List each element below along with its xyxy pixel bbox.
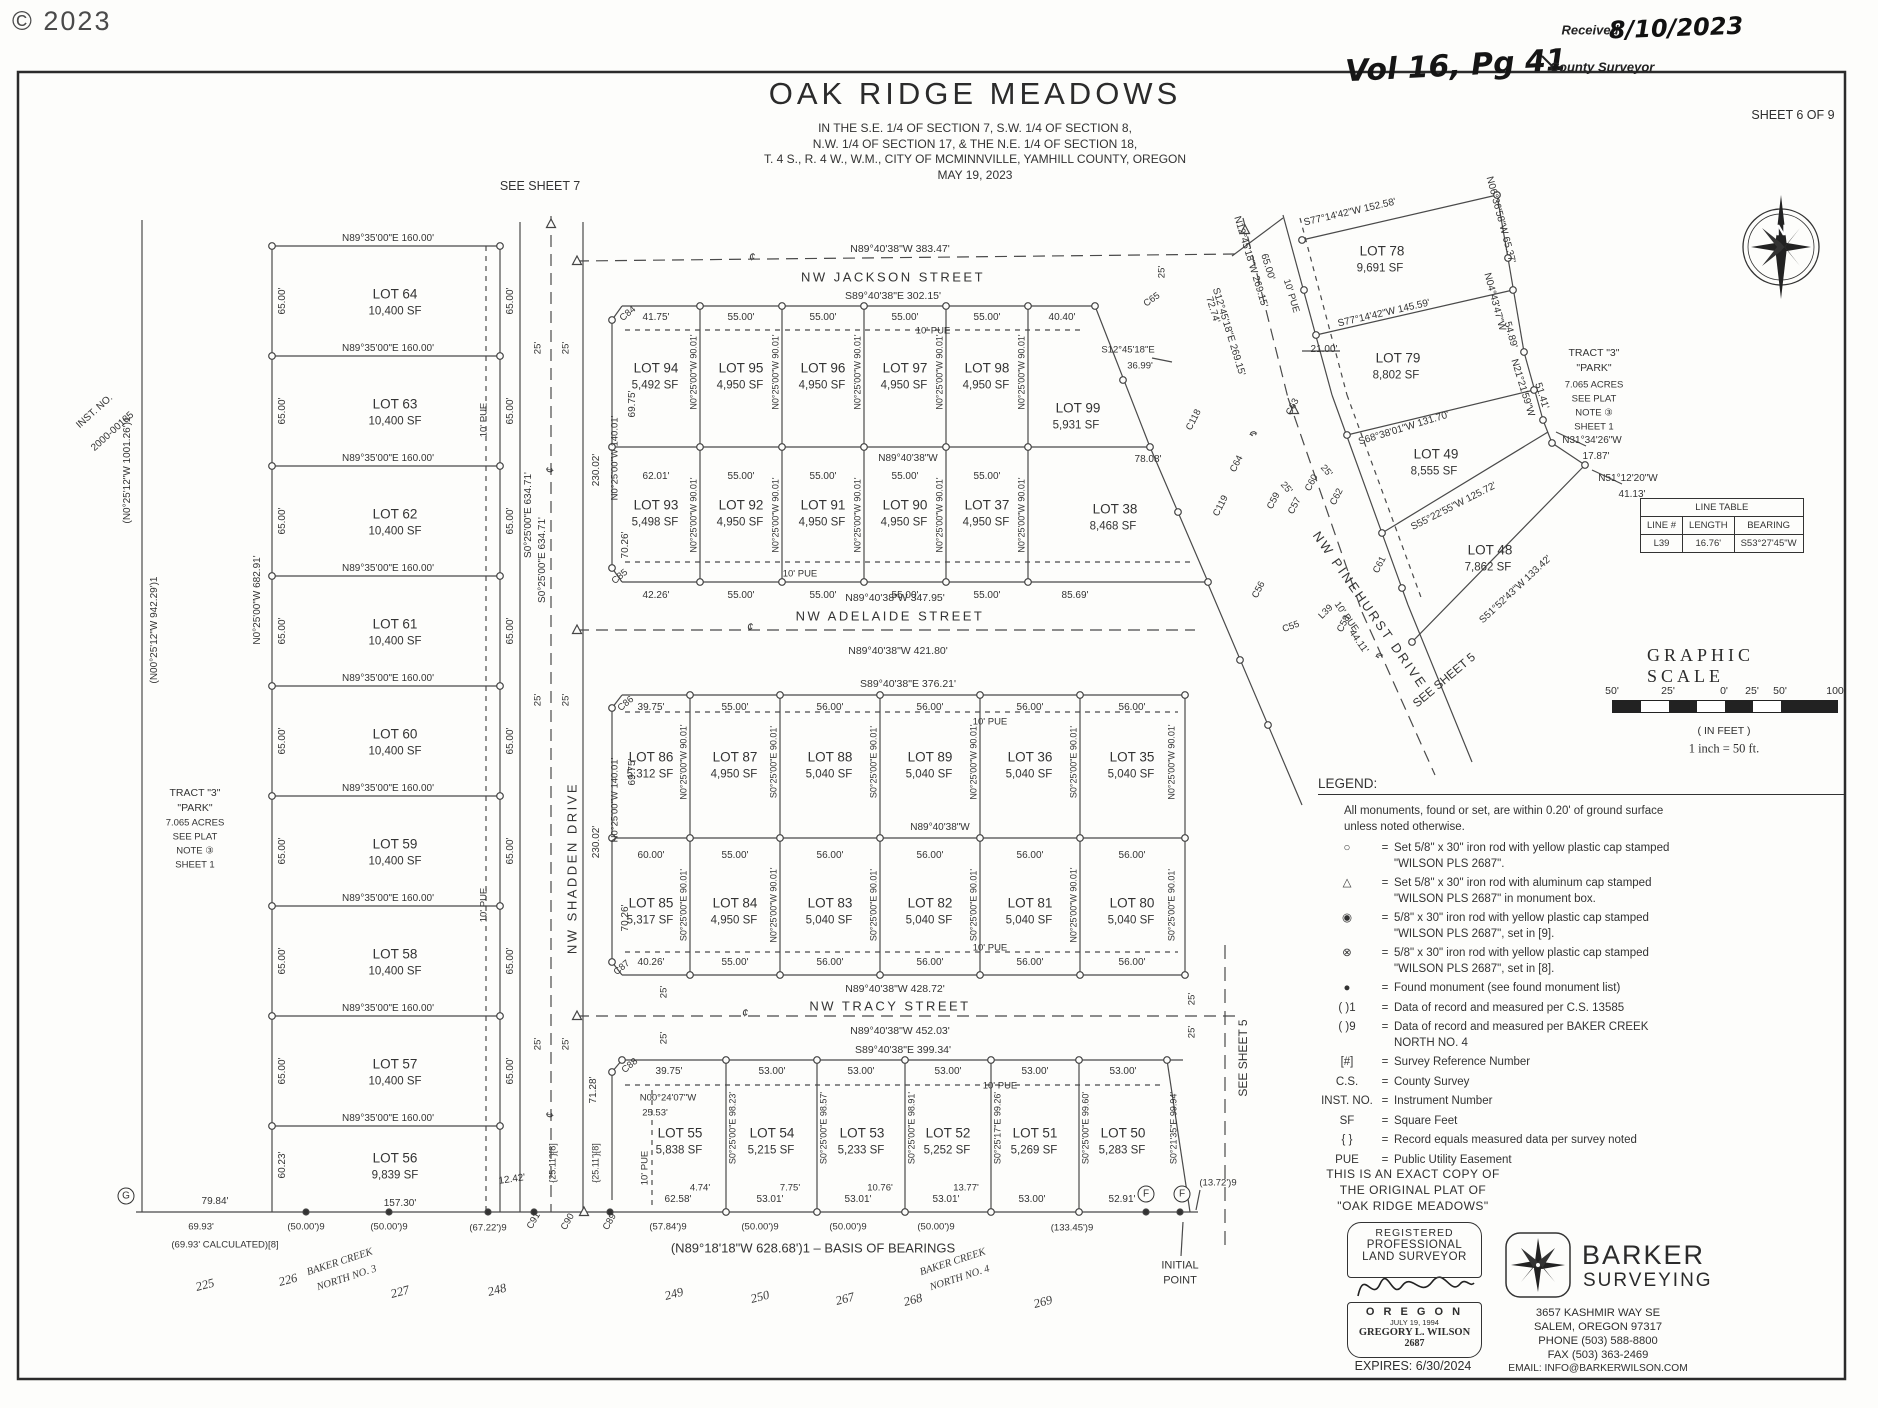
map-label: 39.75': [638, 703, 665, 713]
map-label: LOT 83: [808, 896, 853, 910]
map-label: LOT 93: [634, 498, 679, 512]
map-label: 56.00': [1017, 703, 1044, 713]
map-label: 53.00': [1019, 1195, 1046, 1205]
map-label: LOT 79: [1376, 351, 1421, 365]
line-table-header: LINE #: [1641, 517, 1683, 535]
legend-equals: =: [1376, 1055, 1394, 1071]
map-label: 10' PUE: [973, 943, 1008, 953]
map-label: 56.00': [1017, 958, 1044, 968]
map-label: 56.00': [917, 958, 944, 968]
map-label: (50.00')9: [917, 1222, 954, 1232]
map-label: LOT 57: [373, 1057, 418, 1071]
map-label: 5,269 SF: [1011, 1145, 1058, 1157]
line-table-header: LENGTH: [1683, 517, 1735, 535]
map-label: S89°40'38"E 399.34': [855, 1045, 951, 1056]
map-label: LOT 35: [1110, 750, 1155, 764]
legend-symbol: { }: [1318, 1133, 1376, 1149]
map-label: INITIAL: [1161, 1261, 1198, 1272]
firm-city: SALEM, OREGON 97317: [1468, 1320, 1728, 1334]
stamp-land-surveyor: LAND SURVEYOR: [1348, 1251, 1481, 1263]
legend-symbol: [#]: [1318, 1055, 1376, 1071]
map-label: 10,400 SF: [368, 1076, 421, 1088]
map-label: ¢: [546, 467, 557, 473]
map-label: 55.00': [892, 472, 919, 482]
map-label: LOT 54: [750, 1126, 795, 1140]
map-label: LOT 53: [840, 1126, 885, 1140]
legend-item-text: Set 5/8" x 30" iron rod with yellow plas…: [1394, 841, 1844, 872]
map-label: 70.26': [621, 532, 631, 559]
map-label: 55.00': [810, 472, 837, 482]
line-table-cell: L39: [1641, 535, 1683, 553]
scale-tick-label: 0': [1720, 685, 1728, 697]
legend-items: ○=Set 5/8" x 30" iron rod with yellow pl…: [1318, 841, 1844, 1168]
map-label: 7,862 SF: [1465, 562, 1512, 574]
map-label: 53.00': [759, 1067, 786, 1077]
map-label: 56.00': [917, 703, 944, 713]
map-label: LOT 61: [373, 617, 418, 631]
map-label: SEE SHEET 5: [1237, 1019, 1249, 1096]
scale-tick-label: 25': [1661, 685, 1675, 697]
map-label: 8,802 SF: [1373, 370, 1420, 382]
map-label: 230.02': [592, 454, 602, 487]
map-label: ¢: [546, 1112, 557, 1118]
legend-symbol: ( )9: [1318, 1020, 1376, 1051]
map-label: SHEET 1: [1574, 422, 1613, 432]
map-label: (N00°25'12"W 942.29')1: [150, 577, 160, 684]
map-label: 55.00': [728, 591, 755, 601]
plat-sheet: N © 2023 Vol 16, Pg 41 Received 8/10/202…: [0, 0, 1878, 1408]
legend-equals: =: [1376, 876, 1394, 907]
map-label: 65.00': [506, 398, 516, 425]
legend-equals: =: [1376, 1133, 1394, 1149]
map-label: N89°35'00"E 160.00': [342, 784, 434, 794]
graphic-scale-title: GRAPHIC SCALE: [1647, 645, 1801, 687]
map-label: LOT 82: [908, 896, 953, 910]
stamp-state: O R E G O N: [1348, 1306, 1481, 1318]
map-label: 56.00': [1119, 851, 1146, 861]
title-date: MAY 19, 2023: [764, 168, 1186, 184]
map-label: 55.00': [892, 313, 919, 323]
legend-equals: =: [1376, 1094, 1394, 1110]
map-label: N0°25'00"W 90.01': [690, 334, 699, 409]
map-label: TRACT "3": [1568, 348, 1619, 359]
map-label: SEE PLAT: [173, 832, 218, 842]
map-label: 55.00': [722, 851, 749, 861]
legend-symbol: ○: [1318, 841, 1376, 872]
map-label: 7.75': [780, 1183, 800, 1193]
map-label: LOT 94: [634, 361, 679, 375]
map-label: N0°25'00"W 90.01': [854, 477, 863, 552]
map-label: LOT 50: [1101, 1126, 1146, 1140]
stamp-professional: PROFESSIONAL: [1348, 1239, 1481, 1251]
map-label: LOT 98: [965, 361, 1010, 375]
map-label: S0°25'00"E 634.71': [538, 517, 548, 603]
map-label: N0°25'00"W 140.01': [610, 758, 620, 843]
title-sub2: N.W. 1/4 OF SECTION 17, & THE N.E. 1/4 O…: [764, 137, 1186, 153]
map-label: N0°25'00"W 90.01': [772, 477, 781, 552]
map-label: 5,492 SF: [632, 380, 679, 392]
legend-symbol: ( )1: [1318, 1001, 1376, 1017]
map-label: 25': [561, 342, 571, 354]
map-label: 56.00': [817, 703, 844, 713]
line-table: LINE TABLE LINE #LENGTHBEARING L3916.76'…: [1640, 498, 1804, 553]
map-label: 4,950 SF: [711, 915, 758, 927]
line-table-title: LINE TABLE: [1641, 499, 1804, 517]
map-label: ¢: [742, 1009, 748, 1020]
map-label: S0°21'35"E 99.94': [1170, 1092, 1179, 1164]
map-label: S0°25'00"E 634.71': [524, 472, 534, 558]
map-label: S0°25'00"E 90.01': [870, 726, 879, 798]
map-label: 10,400 SF: [368, 966, 421, 978]
map-label: {25.11'}[8]: [549, 1143, 558, 1183]
map-label: 69.93': [188, 1222, 214, 1232]
legend-item: ●=Found monument (see found monument lis…: [1318, 981, 1844, 997]
map-label: 53.01': [933, 1195, 960, 1205]
map-label: 5,233 SF: [838, 1145, 885, 1157]
map-label: 53.00': [848, 1067, 875, 1077]
map-label: N89°35'00"E 160.00': [342, 1004, 434, 1014]
map-label: S0°25'17"E 99.26': [994, 1092, 1003, 1164]
legend-symbol: INST. NO.: [1318, 1094, 1376, 1110]
map-label: 10' PUE: [783, 569, 818, 579]
legend-symbol: C.S.: [1318, 1075, 1376, 1091]
map-label: 53.01': [757, 1195, 784, 1205]
map-label: ¢: [749, 253, 755, 264]
map-label: 4,950 SF: [963, 380, 1010, 392]
map-label: 65.00': [506, 838, 516, 865]
map-label: 5,317 SF: [627, 915, 674, 927]
map-label: 53.00': [935, 1067, 962, 1077]
graphic-scale-ratio: 1 inch = 50 ft.: [1689, 742, 1760, 757]
legend-equals: =: [1376, 841, 1394, 872]
map-label: S89°40'38"E 376.21': [860, 679, 956, 690]
map-label: 65.00': [506, 618, 516, 645]
map-label: 9,839 SF: [372, 1170, 419, 1182]
map-label: 65.00': [506, 728, 516, 755]
legend-item: △=Set 5/8" x 30" iron rod with aluminum …: [1318, 876, 1844, 907]
map-label: LOT 52: [926, 1126, 971, 1140]
map-label: 10,400 SF: [368, 526, 421, 538]
map-label: (50.00')9: [287, 1222, 324, 1232]
map-label: N0°25'00"W 90.01': [1168, 724, 1177, 799]
legend-intro-line: All monuments, found or set, are within …: [1344, 803, 1844, 819]
map-label: N0°25'00"W 90.01': [970, 724, 979, 799]
map-label: 5,040 SF: [1108, 915, 1155, 927]
map-label: 13.77': [953, 1183, 979, 1193]
stamp-expiration: EXPIRES: 6/30/2024: [1355, 1359, 1472, 1373]
map-label: TRACT "3": [169, 788, 220, 799]
map-label: N0°25'00"W 90.01': [690, 477, 699, 552]
map-label: 25': [561, 694, 571, 706]
map-label: LOT 36: [1008, 750, 1053, 764]
map-label: LOT 63: [373, 397, 418, 411]
map-label: 25': [659, 986, 669, 998]
map-label: 42.26': [643, 591, 670, 601]
map-label: 65.00': [278, 618, 288, 645]
legend-item: ( )1=Data of record and measured per C.S…: [1318, 1001, 1844, 1017]
map-label: 40.40': [1049, 313, 1076, 323]
map-label: 10,400 SF: [368, 306, 421, 318]
legend-item-text: County Survey: [1394, 1075, 1844, 1091]
map-label: 60.00': [638, 851, 665, 861]
legend-symbol: ⊗: [1318, 946, 1376, 977]
map-label: LOT 48: [1468, 543, 1513, 557]
map-label: LOT 51: [1013, 1126, 1058, 1140]
legend-equals: =: [1376, 1114, 1394, 1130]
map-label: 56.00': [917, 851, 944, 861]
map-label: N89°35'00"E 160.00': [342, 454, 434, 464]
map-label: 55.00': [974, 591, 1001, 601]
map-label: N89°40'38"W: [878, 454, 938, 464]
map-label: N89°40'38"W 421.80': [848, 646, 948, 657]
map-label: 10' PUE: [983, 1081, 1018, 1091]
map-label: N89°35'00"E 160.00': [342, 344, 434, 354]
title-sub1: IN THE S.E. 1/4 OF SECTION 7, S.W. 1/4 O…: [764, 121, 1186, 137]
legend-item: { }=Record equals measured data per surv…: [1318, 1133, 1844, 1149]
map-label: (67.22')9: [469, 1223, 506, 1233]
map-label: F: [1174, 1186, 1191, 1203]
map-label: 25': [1187, 1026, 1197, 1038]
map-label: 69.75': [628, 391, 638, 418]
scale-tick-label: 50': [1773, 685, 1787, 697]
legend-item: ○=Set 5/8" x 30" iron rod with yellow pl…: [1318, 841, 1844, 872]
map-label: S0°25'00"E 90.01': [1070, 726, 1079, 798]
map-label: N0°25'00"W 90.01': [936, 477, 945, 552]
map-label: 5,252 SF: [924, 1145, 971, 1157]
map-label: 10' PUE: [479, 403, 489, 438]
map-label: 78.08': [1135, 455, 1162, 465]
legend-intro: All monuments, found or set, are within …: [1344, 803, 1844, 835]
map-label: G: [118, 1188, 135, 1205]
map-label: 52.91': [1109, 1195, 1136, 1205]
map-label: N89°40'38"W 383.47': [850, 244, 950, 255]
graphic-scale-units: ( IN FEET ): [1698, 725, 1751, 737]
map-label: 10,400 SF: [368, 746, 421, 758]
map-label: 4,950 SF: [799, 517, 846, 529]
legend-item-text: Data of record and measured per C.S. 135…: [1394, 1001, 1844, 1017]
map-label: (133.45')9: [1051, 1223, 1093, 1233]
map-label: S12°45'18"E: [1101, 345, 1154, 355]
map-label: 5,040 SF: [1108, 769, 1155, 781]
map-label: 71.28': [589, 1077, 599, 1104]
map-label: N89°35'00"E 160.00': [342, 234, 434, 244]
map-label: 5,040 SF: [806, 769, 853, 781]
map-label: 25': [1187, 993, 1197, 1005]
map-label: SEE SHEET 7: [500, 180, 580, 193]
copyright-mark: © 2023: [12, 6, 111, 37]
legend-intro-line: unless noted otherwise.: [1344, 819, 1844, 835]
graphic-scale-bar: [1612, 700, 1838, 713]
map-label: 5,040 SF: [906, 769, 953, 781]
map-label: 41.75': [643, 313, 670, 323]
map-label: LOT 95: [719, 361, 764, 375]
svg-text:N: N: [1776, 222, 1787, 239]
map-label: 65.00': [278, 508, 288, 535]
map-label: LOT 59: [373, 837, 418, 851]
map-label: 55.00': [810, 313, 837, 323]
map-label: 65.00': [278, 288, 288, 315]
map-label: 5,283 SF: [1099, 1145, 1146, 1157]
map-label: NOTE ③: [1575, 408, 1613, 418]
map-label: LOT 49: [1414, 447, 1459, 461]
plat-title: OAK RIDGE MEADOWS: [764, 76, 1186, 112]
map-label: 55.00': [974, 313, 1001, 323]
map-label: 65.00': [278, 838, 288, 865]
map-label: 7.065 ACRES: [1565, 380, 1624, 390]
legend-item-text: Survey Reference Number: [1394, 1055, 1844, 1071]
map-label: N0°25'00"W 90.01': [936, 334, 945, 409]
county-surveyor-stamp: County Surveyor: [1550, 60, 1655, 75]
legend-equals: =: [1376, 1075, 1394, 1091]
map-label: 60.23': [278, 1152, 288, 1179]
legend-equals: =: [1376, 1020, 1394, 1051]
exact-copy-line: THIS IS AN EXACT COPY OF: [1326, 1166, 1500, 1182]
map-label: LOT 85: [629, 896, 674, 910]
map-label: LOT 80: [1110, 896, 1155, 910]
stamp-registered: REGISTERED: [1348, 1227, 1481, 1239]
legend: LEGEND: All monuments, found or set, are…: [1318, 776, 1844, 1168]
map-label: (69.93' CALCULATED)[8]: [171, 1240, 278, 1250]
map-label: LOT 38: [1093, 502, 1138, 516]
firm-address: 3657 KASHMIR WAY SE SALEM, OREGON 97317 …: [1468, 1306, 1728, 1376]
map-label: 25.53': [642, 1108, 668, 1118]
map-label: 5,312 SF: [627, 769, 674, 781]
map-label: LOT 90: [883, 498, 928, 512]
map-label: LOT 58: [373, 947, 418, 961]
map-label: 62.58': [665, 1195, 692, 1205]
map-label: LOT 78: [1360, 244, 1405, 258]
map-label: 5,215 SF: [748, 1145, 795, 1157]
legend-item-text: 5/8" x 30" iron rod with yellow plastic …: [1394, 911, 1844, 942]
map-label: LOT 92: [719, 498, 764, 512]
map-label: 8,555 SF: [1411, 466, 1458, 478]
map-label: N0°25'00"W 90.01': [1018, 477, 1027, 552]
legend-symbol: ●: [1318, 981, 1376, 997]
scale-tick-label: 50': [1605, 685, 1619, 697]
firm-name: BARKER: [1582, 1240, 1705, 1271]
map-label: 5,040 SF: [1006, 915, 1053, 927]
map-label: LOT 64: [373, 287, 418, 301]
legend-item: ( )9=Data of record and measured per BAK…: [1318, 1020, 1844, 1051]
legend-equals: =: [1376, 1001, 1394, 1017]
map-label: 5,838 SF: [656, 1145, 703, 1157]
map-label: 17.87': [1583, 452, 1610, 462]
legend-item-text: Data of record and measured per BAKER CR…: [1394, 1020, 1844, 1051]
sheet-number: SHEET 6 OF 9: [1751, 108, 1834, 122]
map-label: S0°25'00"E 99.60': [1082, 1092, 1091, 1164]
map-label: LOT 56: [373, 1151, 418, 1165]
map-label: N89°35'00"E 160.00': [342, 564, 434, 574]
legend-item-text: 5/8" x 30" iron rod with yellow plastic …: [1394, 946, 1844, 977]
legend-symbol: SF: [1318, 1114, 1376, 1130]
map-label: 55.00': [722, 958, 749, 968]
map-label: N0°25'00"W 90.01': [680, 724, 689, 799]
map-label: LOT 84: [713, 896, 758, 910]
legend-title: LEGEND:: [1318, 776, 1844, 795]
map-label: 25': [659, 1032, 669, 1044]
map-label: {25.11'}[8]: [592, 1143, 601, 1183]
map-label: N0°25'00"W 90.01': [772, 334, 781, 409]
map-label: 4,950 SF: [717, 380, 764, 392]
map-label: 25': [533, 1038, 543, 1050]
firm-phone: PHONE (503) 588-8800: [1468, 1334, 1728, 1348]
map-label: 85.69': [1062, 591, 1089, 601]
map-label: N00°24'07"W: [640, 1093, 697, 1103]
map-label: N0°25'00"W 90.01': [854, 334, 863, 409]
map-label: N31°34'26"W: [1562, 436, 1622, 446]
scale-tick-label: 100': [1826, 685, 1846, 697]
map-label: 36.99': [1127, 361, 1153, 371]
legend-item: ◉=5/8" x 30" iron rod with yellow plasti…: [1318, 911, 1844, 942]
map-label: 230.02': [592, 826, 602, 859]
map-label: N0°25'00"W 90.01': [770, 867, 779, 942]
title-block: OAK RIDGE MEADOWS IN THE S.E. 1/4 OF SEC…: [764, 76, 1186, 183]
legend-item: [#]=Survey Reference Number: [1318, 1055, 1844, 1071]
exact-copy-line: "OAK RIDGE MEADOWS": [1326, 1198, 1500, 1214]
map-label: N89°40'38"W 347.95': [845, 593, 945, 604]
title-sub3: T. 4 S., R. 4 W., W.M., CITY OF MCMINNVI…: [764, 152, 1186, 168]
map-label: 9,691 SF: [1357, 263, 1404, 275]
map-label: 53.01': [845, 1195, 872, 1205]
legend-item-text: Set 5/8" x 30" iron rod with aluminum ca…: [1394, 876, 1844, 907]
map-label: S0°25'00"E 90.01': [870, 869, 879, 941]
stamp-surveyor-name: GREGORY L. WILSON: [1348, 1327, 1481, 1338]
stamp-license-number: 2687: [1348, 1338, 1481, 1349]
legend-item-text: Instrument Number: [1394, 1094, 1844, 1110]
map-label: 56.00': [1017, 851, 1044, 861]
legend-equals: =: [1376, 981, 1394, 997]
map-label: NW JACKSON STREET: [801, 271, 985, 284]
map-label: LOT 55: [658, 1126, 703, 1140]
map-label: SHEET 1: [175, 860, 214, 870]
map-label: 4.74': [690, 1183, 710, 1193]
map-label: NOTE ③: [176, 846, 214, 856]
map-label: LOT 87: [713, 750, 758, 764]
map-label: 5,931 SF: [1053, 420, 1100, 432]
legend-item: ⊗=5/8" x 30" iron rod with yellow plasti…: [1318, 946, 1844, 977]
map-label: S0°25'00"E 90.01': [680, 869, 689, 941]
map-label: 55.00': [728, 472, 755, 482]
map-label: S0°25'00"E 90.01': [1168, 869, 1177, 941]
map-label: 4,950 SF: [711, 769, 758, 781]
surveyor-stamp: REGISTERED PROFESSIONAL LAND SURVEYOR O …: [1347, 1222, 1480, 1356]
map-label: N89°40'38"W 428.72': [845, 984, 945, 995]
map-label: (N0°25'12"W 1001.26')1: [123, 417, 133, 524]
map-label: LOT 91: [801, 498, 846, 512]
map-label: S0°25'00"E 90.01': [970, 869, 979, 941]
legend-item-text: Square Feet: [1394, 1114, 1844, 1130]
map-label: F: [1138, 1186, 1155, 1203]
map-label: N89°35'00"E 160.00': [342, 1114, 434, 1124]
map-label: (50.00')9: [370, 1222, 407, 1232]
map-label: POINT: [1163, 1276, 1197, 1287]
map-label: 56.00': [1119, 703, 1146, 713]
map-label: NW SHADDEN DRIVE: [566, 782, 579, 954]
exact-copy-statement: THIS IS AN EXACT COPY OFTHE ORIGINAL PLA…: [1326, 1166, 1500, 1214]
map-label: LOT 99: [1056, 401, 1101, 415]
map-label: N0°25'00"W 140.01': [610, 416, 620, 501]
map-label: 25': [1157, 266, 1167, 278]
map-label: 55.00': [810, 591, 837, 601]
map-label: 79.84': [202, 1197, 229, 1207]
map-label: 10' PUE: [640, 1151, 650, 1186]
map-label: LOT 89: [908, 750, 953, 764]
map-label: 10,400 SF: [368, 636, 421, 648]
stamp-license-date: JULY 19, 1994: [1348, 1318, 1481, 1327]
legend-item-text: Found monument (see found monument list): [1394, 981, 1844, 997]
legend-equals: =: [1376, 946, 1394, 977]
map-label: LOT 81: [1008, 896, 1053, 910]
